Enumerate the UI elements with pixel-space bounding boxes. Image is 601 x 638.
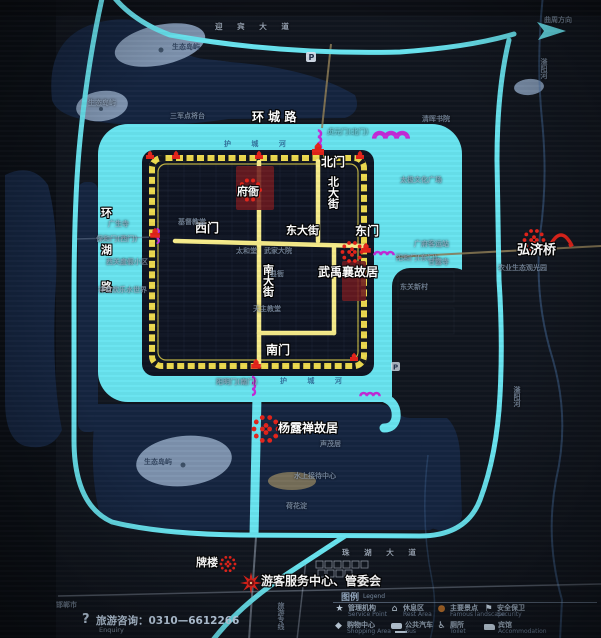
south-river (254, 396, 257, 536)
faint-label: 贞元门(北门) (327, 127, 368, 137)
quzhou-direction-label: 曲周方向 (544, 15, 572, 25)
east-gate-label: 东门 (355, 225, 379, 238)
legend-en: Rest Area (403, 612, 432, 619)
faint-label: 武家大院 (264, 246, 292, 256)
bed-icon (484, 624, 495, 630)
faint-label: 保和门(西门) (96, 234, 137, 244)
legend-en: Toilet (450, 629, 466, 636)
enquiry-icon: ? (82, 612, 90, 627)
tour-line-label: 旅游专线 (276, 602, 286, 630)
north-street-label: 北大街 (327, 176, 339, 209)
faint-label: 生态岛屿 (144, 457, 172, 467)
pailou-label: 牌楼 (196, 557, 218, 569)
faint-label: 甘露寺 (428, 257, 449, 267)
top-dark-band (0, 0, 601, 16)
fuyang-river-label: 滏阳河 (512, 386, 522, 407)
fuyang-river-label: 滏阳河 (539, 58, 549, 79)
legend-en: Shopping Area (347, 629, 391, 636)
faint-label: 荷花淀 (286, 501, 307, 511)
legend-item-shopping: 购物中心Shopping Area (333, 621, 391, 636)
hongji-bridge-label: 弘济桥 (517, 244, 556, 258)
faint-label: 西关度假小区 (106, 257, 148, 267)
legend-en: Bus (405, 629, 433, 636)
wu-yuxiang-label: 武禹襄故居 (318, 266, 378, 279)
bus-icon (391, 623, 402, 629)
hotline-en: Enquiry (99, 626, 124, 634)
toilet-icon (436, 621, 447, 631)
east-street-label: 东大街 (286, 225, 319, 237)
faint-label: 基督教堂 (178, 217, 206, 227)
faint-label: 太和堂 (236, 246, 257, 256)
ring-city-road-label: 环 城 路 (252, 111, 296, 124)
legend-title-en: Legend (363, 593, 385, 600)
south-gate-label: 南门 (266, 344, 290, 357)
moat-label: 护 城 河 (224, 139, 295, 149)
legend-en: Accommodation (498, 629, 547, 636)
legend-en: Security (497, 612, 525, 619)
fuya-label: 府衙 (237, 186, 259, 198)
faint-label: 太极文化广场 (400, 175, 442, 185)
star-icon (334, 604, 345, 614)
faint-label: 声茂居 (320, 439, 341, 449)
visitor-center-star (240, 572, 262, 594)
yang-luchan-label: 杨露禅故居 (278, 422, 338, 435)
zhuhu-avenue-label: 珠 湖 大 道 (342, 547, 422, 558)
north-gate-label: 北门 (321, 156, 345, 169)
legend-item-accommodation: 宾馆Accommodation (484, 621, 547, 636)
faint-label: 祥龙欢乐水世界 (98, 285, 147, 295)
faint-label: 阳明门(南门) (216, 377, 257, 387)
faint-label: 三军点将台 (170, 111, 205, 121)
handan-direction-label: 邯郸市 (56, 600, 77, 610)
pavilion-icon (389, 604, 400, 614)
legend-item-rest-area: 休息区Rest Area (389, 604, 432, 619)
landmark-dot-icon (436, 604, 447, 614)
faint-label: 水上接待中心 (294, 471, 336, 481)
yingbin-avenue-label: 迎 宾 大 道 (215, 21, 295, 32)
security-flag-icon (483, 604, 494, 614)
faint-label: 清晖书院 (422, 114, 450, 124)
legend-divider (333, 602, 597, 603)
tourist-map: P P 北门 西门 东门 南门 府衙 武禹襄故居 杨露禅故居 弘济桥 牌楼 游客… (0, 0, 601, 638)
faint-label: 生态岛屿 (172, 42, 200, 52)
faint-label: 农业生态观光园 (498, 263, 547, 273)
faint-label: 县衙 (270, 269, 284, 279)
shopping-icon (333, 621, 344, 631)
moat-label: 护 城 河 (280, 376, 351, 386)
legend-item-security: 安全保卫Security (483, 604, 525, 619)
legend-en: Service Point (348, 612, 387, 619)
svg-text:P: P (393, 364, 398, 372)
faint-label: 东关新村 (400, 282, 428, 292)
visitor-center-label: 游客服务中心、管委会 (261, 575, 381, 588)
legend-item-toilet: 厕所Toilet (436, 621, 466, 636)
faint-label: 生态岛屿 (88, 98, 116, 108)
svg-text:P: P (309, 53, 315, 62)
legend-item-service-point: 管理机构Service Point (334, 604, 387, 619)
map-canvas: P P (0, 0, 601, 638)
faint-label: 天主教堂 (253, 304, 281, 314)
faint-label: 广生寺 (108, 219, 129, 229)
legend-item-bus: 公共汽车Bus (391, 621, 433, 636)
faint-label: 广府客运站 (414, 239, 449, 249)
